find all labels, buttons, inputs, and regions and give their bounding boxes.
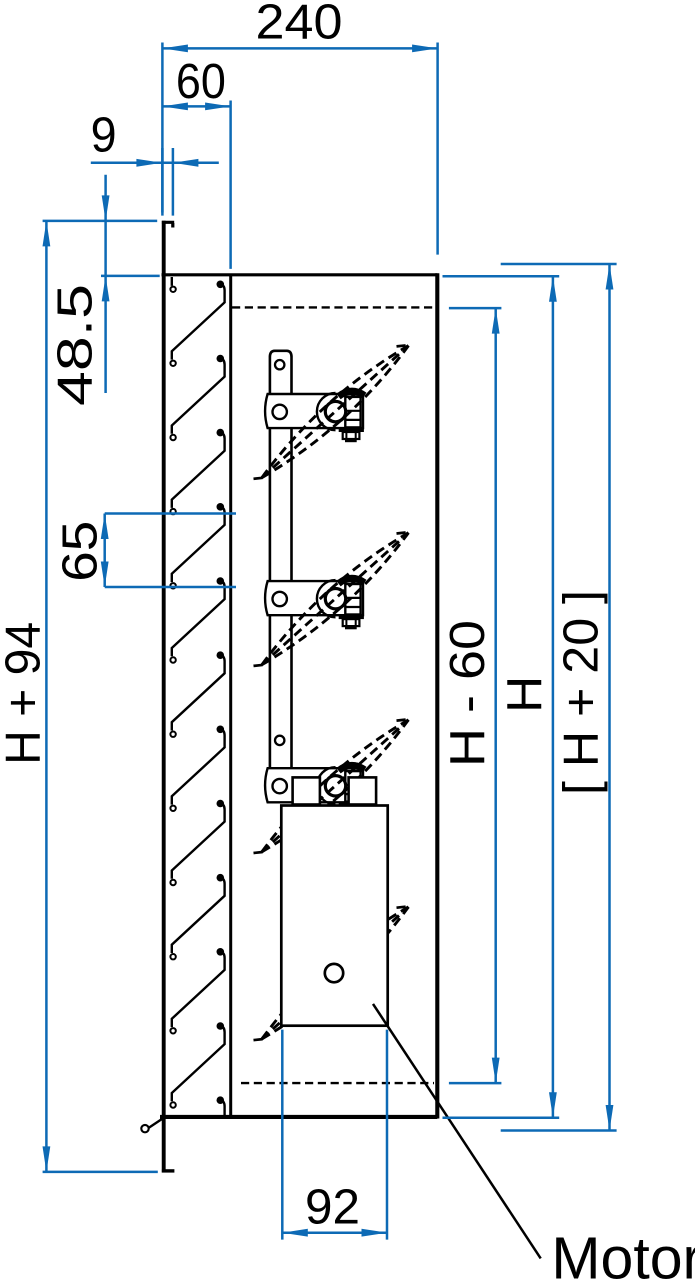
svg-text:9: 9: [91, 108, 117, 162]
svg-text:H: H: [498, 676, 552, 713]
svg-text:H + 94: H + 94: [0, 622, 51, 765]
svg-text:H - 60: H - 60: [441, 620, 495, 767]
svg-text:Motor: Motor: [551, 1226, 695, 1280]
svg-text:240: 240: [256, 0, 343, 50]
svg-text:65: 65: [53, 521, 107, 582]
svg-text:92: 92: [305, 1180, 360, 1234]
svg-text:60: 60: [176, 55, 226, 109]
svg-text:[ H + 20 ]: [ H + 20 ]: [555, 590, 609, 795]
svg-text:48.5: 48.5: [48, 284, 102, 406]
